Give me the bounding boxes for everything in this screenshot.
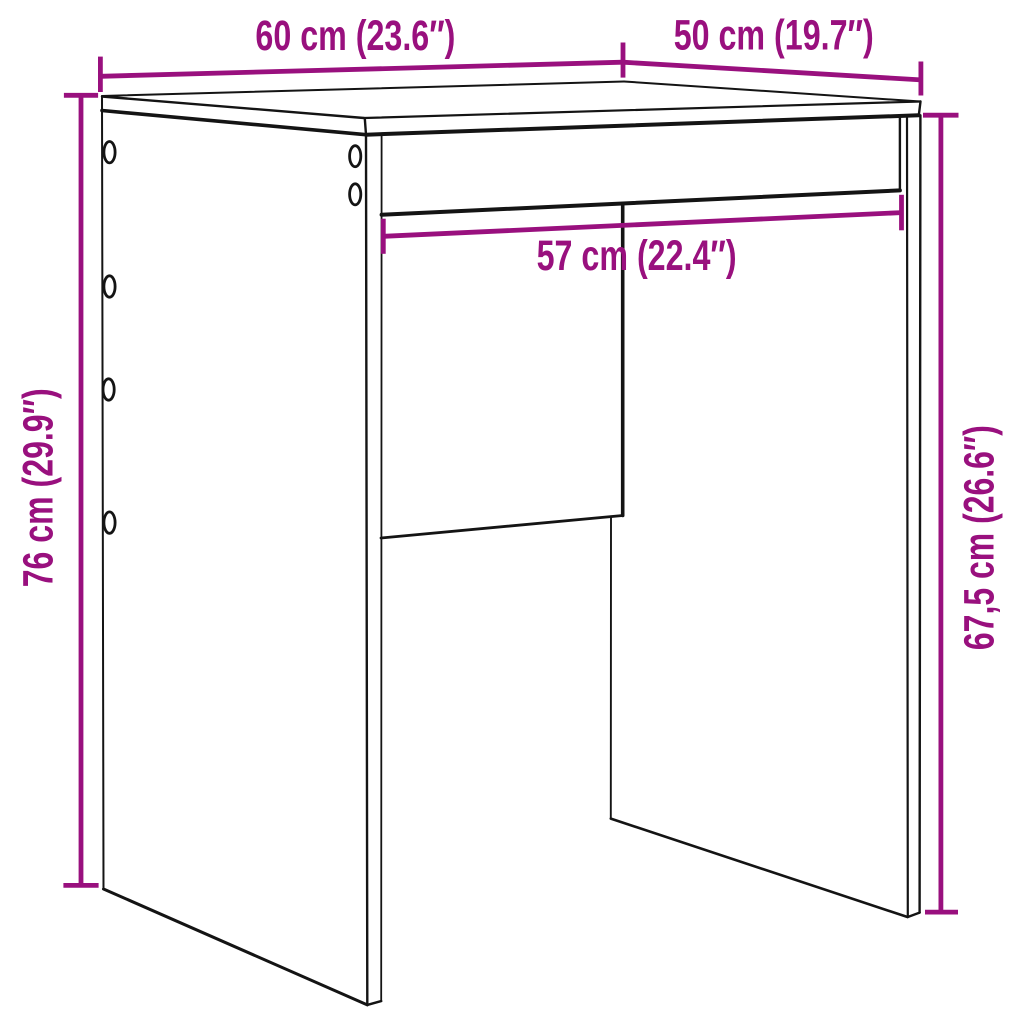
svg-text:76 cm (29.9″): 76 cm (29.9″): [15, 388, 63, 587]
svg-text:60 cm (23.6″): 60 cm (23.6″): [255, 12, 455, 60]
svg-text:67,5 cm (26.6″): 67,5 cm (26.6″): [956, 425, 1004, 650]
svg-text:57 cm (22.4″): 57 cm (22.4″): [537, 232, 737, 280]
svg-text:50 cm (19.7″): 50 cm (19.7″): [674, 12, 874, 60]
